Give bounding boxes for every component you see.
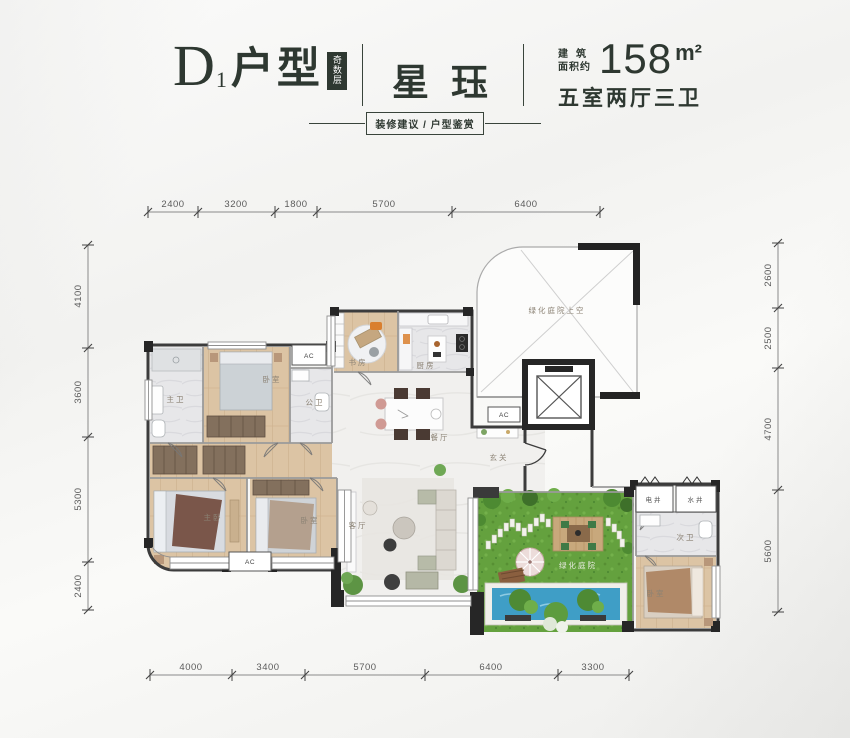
label-water-shaft: 水井 <box>688 495 705 504</box>
dim-bottom-0: 4000 <box>179 662 202 673</box>
label-bedroom-top: 卧室 <box>263 374 282 384</box>
area-block: 建筑 面积约 158 m² 五室两厅三卫 <box>558 40 702 112</box>
dim-bottom-3: 6400 <box>479 662 502 673</box>
dim-right-2: 4700 <box>763 417 774 440</box>
area-label-1: 建筑 <box>558 48 594 61</box>
floor-badge: 奇数层 <box>327 52 347 90</box>
label-courtyard: 绿化庭院 <box>559 560 597 570</box>
layout-summary: 五室两厅三卫 <box>558 82 702 112</box>
label-study: 书房 <box>349 357 368 367</box>
dim-right-3: 5600 <box>763 539 774 562</box>
elevator <box>525 362 592 427</box>
dim-top-0: 2400 <box>161 199 184 210</box>
subtitle-line-right <box>485 123 541 124</box>
label-master-bath: 主卫 <box>167 394 186 404</box>
label-public-bath: 公卫 <box>306 398 325 407</box>
ac-label-top: AC <box>304 353 314 360</box>
subtitle-box: 装修建议 / 户型鉴赏 <box>366 112 483 135</box>
label-bedroom-middle: 卧室 <box>301 515 320 525</box>
dim-top-1: 3200 <box>224 199 247 210</box>
unit-title: D 1 户型 奇数层 <box>173 40 347 92</box>
unit-letter: D <box>173 40 215 92</box>
subtitle-row: 装修建议 / 户型鉴赏 <box>0 112 850 135</box>
floorplan-svg: 绿化庭院上空 <box>0 150 850 738</box>
dim-left-3: 2400 <box>73 574 84 597</box>
dim-right-1: 2500 <box>763 326 774 349</box>
label-bedroom-right: 卧室 <box>647 588 666 598</box>
floorplan-page: { "header": { "unit_letter": "D", "unit_… <box>0 0 850 738</box>
label-kitchen: 厨房 <box>417 360 436 370</box>
ac-label-entry: AC <box>499 412 509 419</box>
dim-right-0: 2600 <box>763 263 774 286</box>
header-divider-left <box>362 44 363 106</box>
ac-label-bottom: AC <box>245 559 255 566</box>
dim-bottom-1: 3400 <box>256 662 279 673</box>
area-unit: m² <box>675 40 702 66</box>
dim-bottom-4: 3300 <box>581 662 604 673</box>
label-electric-shaft: 电井 <box>646 495 663 504</box>
label-courtyard-void: 绿化庭院上空 <box>529 305 586 315</box>
area-label-2: 面积约 <box>558 61 594 74</box>
dim-left-0: 4100 <box>73 284 84 307</box>
unit-number: 1 <box>216 69 227 91</box>
utility-shafts: 电井 水井 <box>636 477 716 512</box>
dim-top-4: 6400 <box>514 199 537 210</box>
dim-left-2: 5300 <box>73 487 84 510</box>
dim-left-1: 3600 <box>73 380 84 403</box>
dim-bottom-2: 5700 <box>353 662 376 673</box>
subtitle-line-left <box>309 123 365 124</box>
dim-top-3: 5700 <box>372 199 395 210</box>
label-living: 客厅 <box>349 520 368 530</box>
label-foyer: 玄关 <box>490 452 509 462</box>
unit-word: 户型 <box>231 47 323 91</box>
label-second-bath: 次卫 <box>677 532 696 542</box>
dim-top-2: 1800 <box>284 199 307 210</box>
label-dining: 餐厅 <box>431 433 450 442</box>
header-divider-right <box>523 44 524 106</box>
project-name: 星珏 <box>392 52 510 106</box>
area-value: 158 <box>599 40 672 78</box>
label-master-bedroom: 主卧 <box>204 512 223 522</box>
